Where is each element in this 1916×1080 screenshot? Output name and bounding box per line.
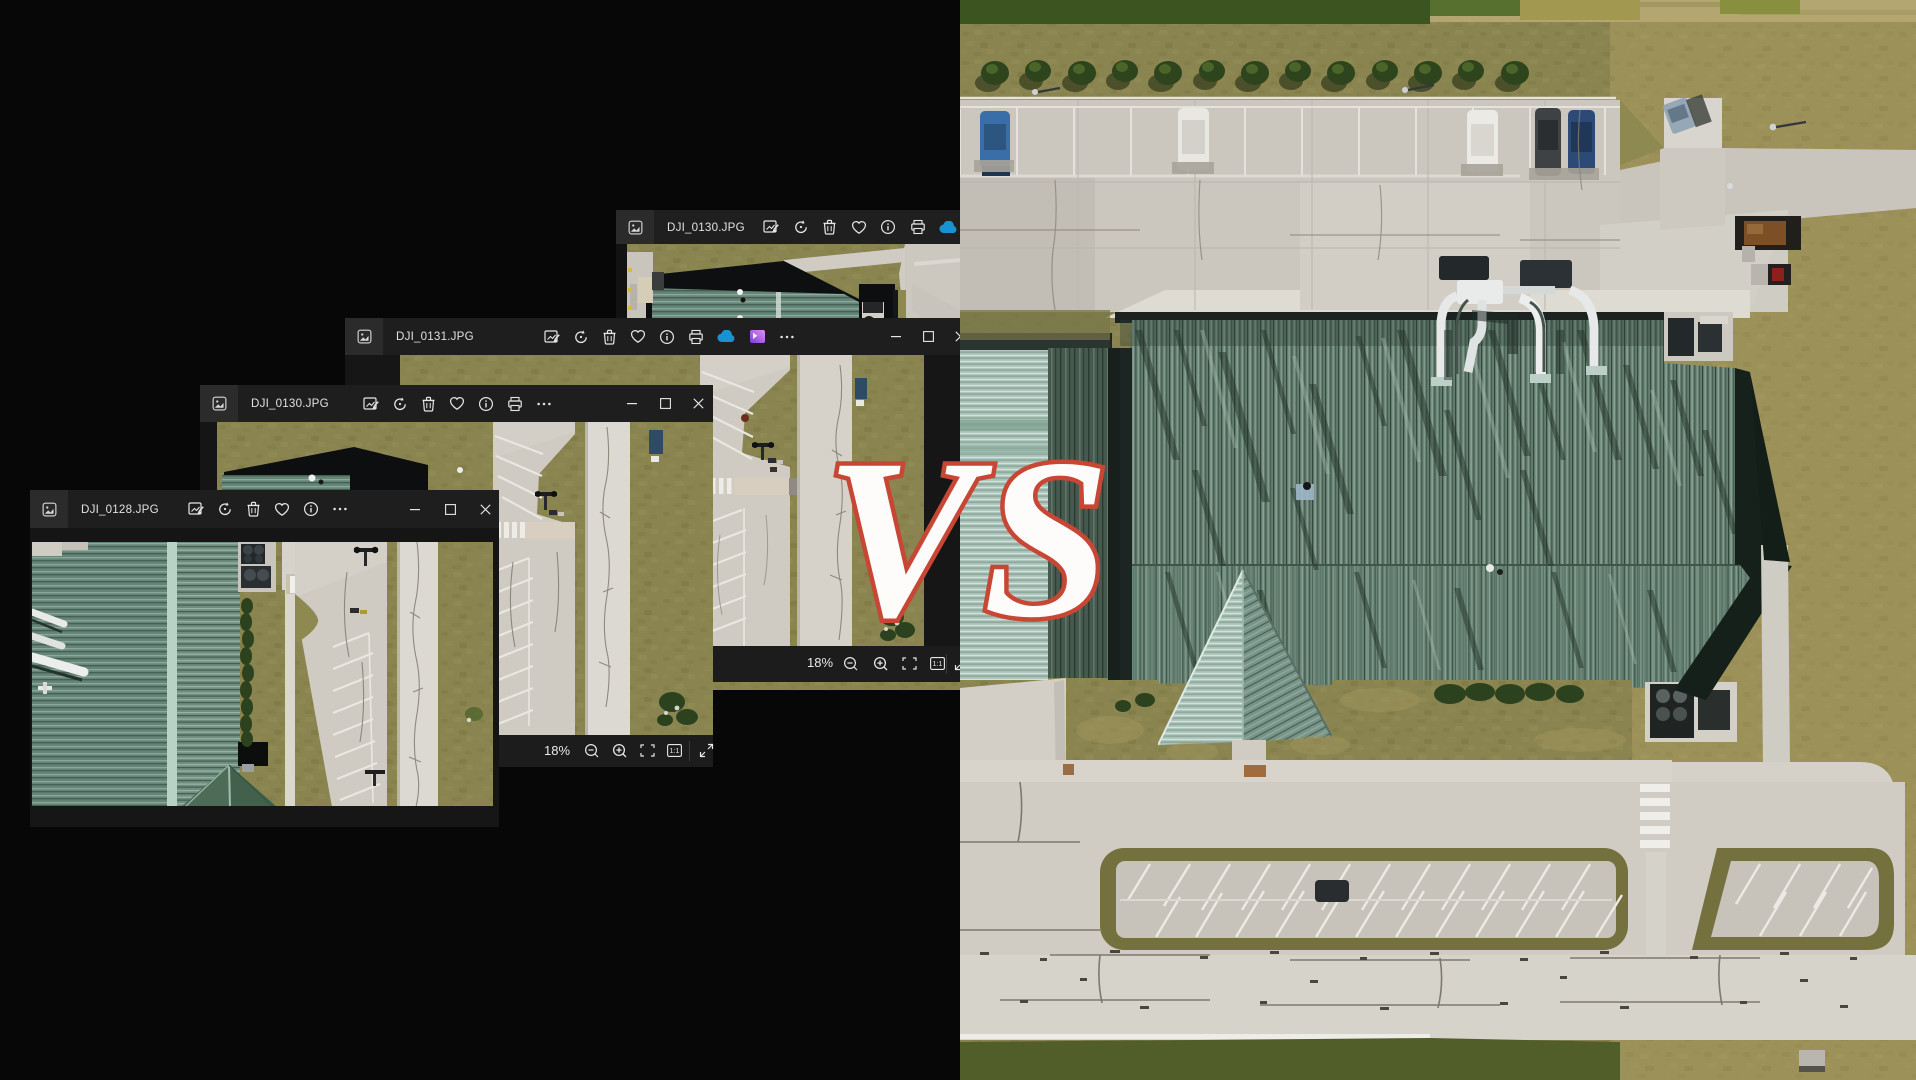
svg-text:VS: VS: [825, 425, 1116, 665]
svg-text:1:1: 1:1: [670, 748, 680, 755]
